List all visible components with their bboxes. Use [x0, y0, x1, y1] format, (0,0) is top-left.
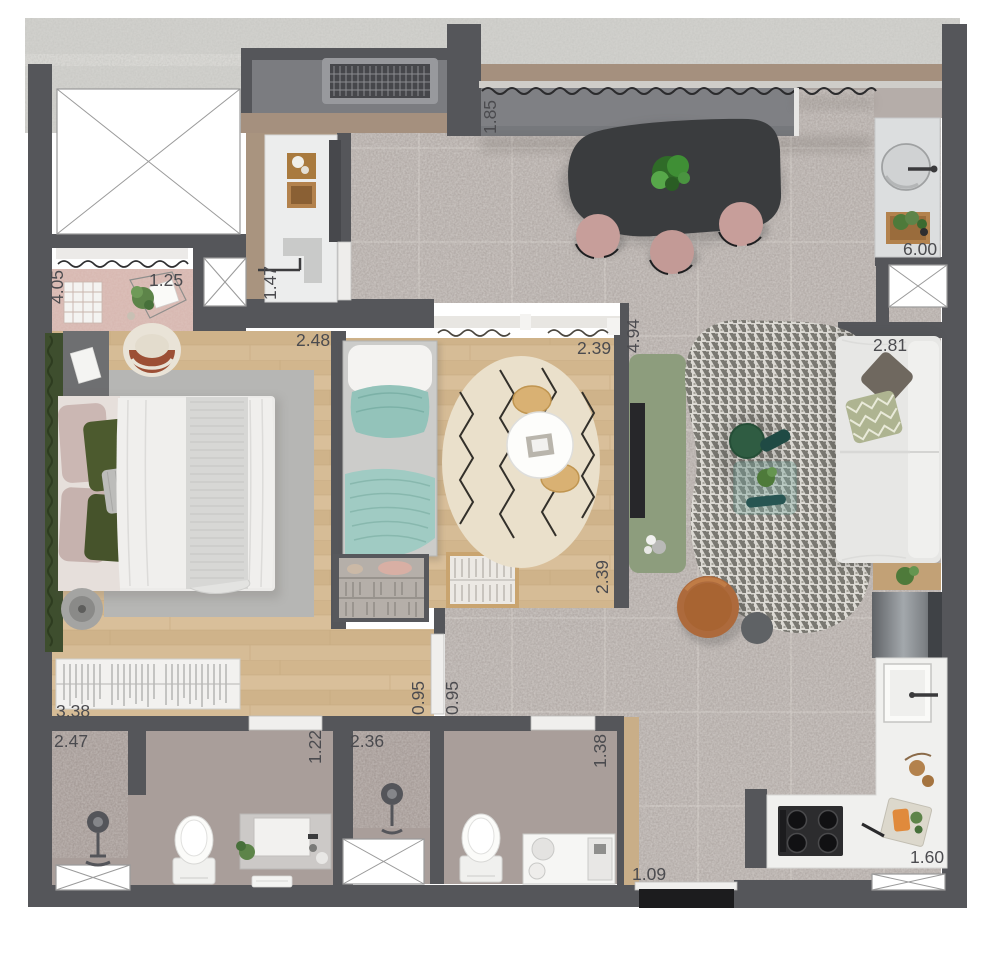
svg-text:2.39: 2.39: [592, 560, 612, 594]
svg-text:1.38: 1.38: [590, 734, 610, 768]
svg-text:2.47: 2.47: [54, 731, 88, 751]
svg-text:2.48: 2.48: [296, 330, 330, 350]
svg-text:1.25: 1.25: [149, 270, 183, 290]
svg-text:6.00: 6.00: [903, 239, 937, 259]
svg-text:0.95: 0.95: [408, 681, 428, 715]
svg-text:2.81: 2.81: [873, 335, 907, 355]
svg-text:1.85: 1.85: [480, 100, 500, 134]
svg-text:4.05: 4.05: [47, 270, 67, 304]
svg-text:2.36: 2.36: [350, 731, 384, 751]
svg-text:1.22: 1.22: [305, 730, 325, 764]
svg-text:1.60: 1.60: [910, 847, 944, 867]
svg-text:1.09: 1.09: [632, 864, 666, 884]
svg-text:4.94: 4.94: [623, 319, 643, 353]
svg-text:1.47: 1.47: [260, 266, 280, 300]
svg-text:3.38: 3.38: [56, 701, 90, 721]
svg-text:0.95: 0.95: [442, 681, 462, 715]
svg-text:2.39: 2.39: [577, 338, 611, 358]
